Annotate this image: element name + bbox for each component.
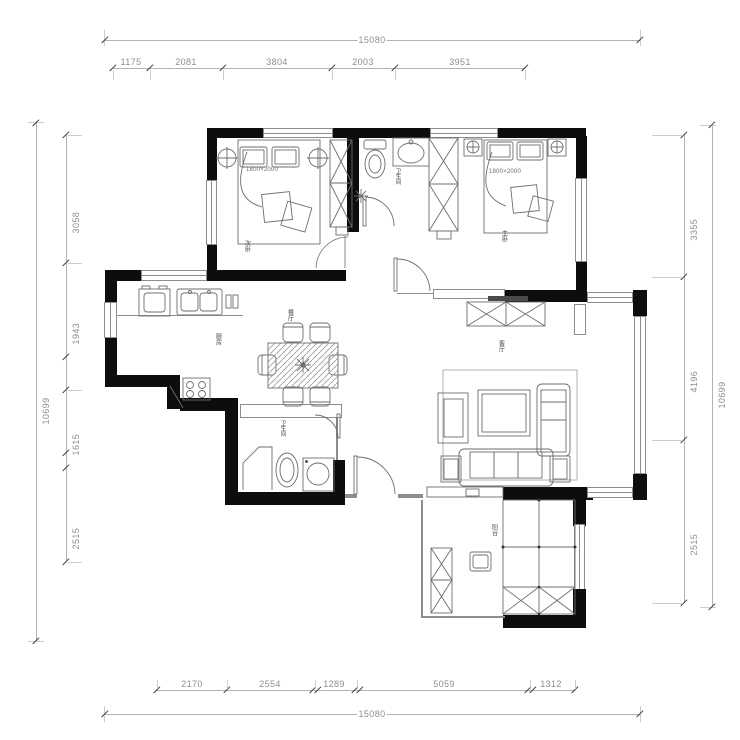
room-label-bedroom-right: 主卧 bbox=[500, 230, 507, 242]
room-label-bedroom-left: 次卧 bbox=[243, 240, 250, 252]
kitchen-fixtures bbox=[139, 286, 238, 408]
bedroom-left-furniture bbox=[216, 140, 352, 268]
bed-size-label: 1800×2000 bbox=[489, 169, 521, 175]
bathroom-top-fixtures bbox=[354, 138, 458, 239]
bedroom-right-furniture bbox=[464, 139, 566, 233]
living-room-furniture bbox=[427, 370, 577, 497]
dining-furniture bbox=[258, 323, 347, 406]
room-label-guest-bathroom: 卫生间 bbox=[279, 420, 286, 437]
room-label-bathroom: 卫生间 bbox=[394, 168, 401, 185]
guest-bathroom-fixtures bbox=[243, 414, 340, 491]
room-label-balcony: 阳台 bbox=[490, 524, 497, 536]
room-label-kitchen: 厨房 bbox=[214, 333, 221, 345]
room-label-dining: 餐厅 bbox=[286, 309, 293, 321]
room-label-living: 客厅 bbox=[497, 340, 504, 352]
bed-size-label: 1800×2000 bbox=[246, 167, 278, 173]
balcony-furniture bbox=[431, 499, 577, 616]
furniture-layer bbox=[0, 0, 740, 740]
floor-plan-canvas: 15080 1175 2081 3804 2003 3951 2170 2554… bbox=[0, 0, 740, 740]
